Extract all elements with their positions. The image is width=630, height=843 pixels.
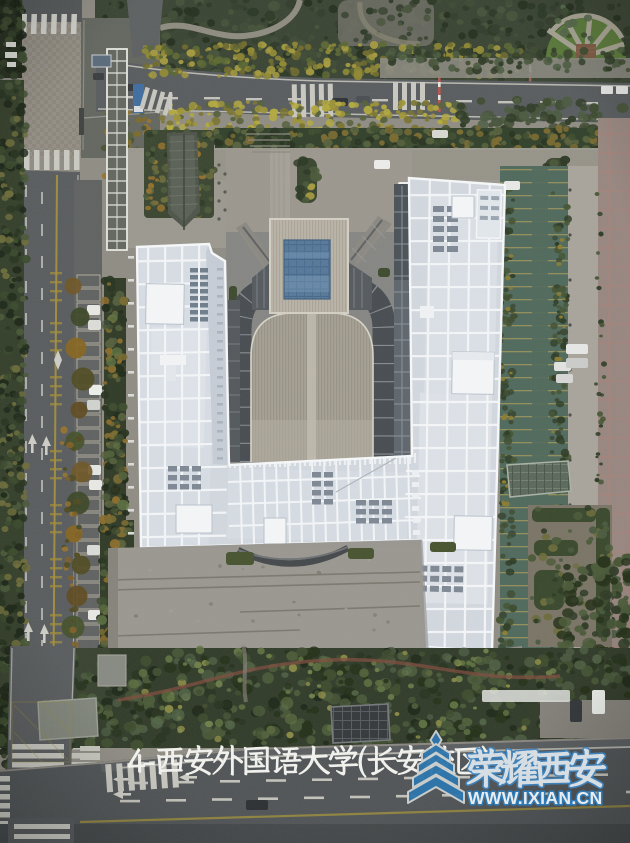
svg-text:WWW.IXIAN.CN: WWW.IXIAN.CN (468, 788, 603, 808)
